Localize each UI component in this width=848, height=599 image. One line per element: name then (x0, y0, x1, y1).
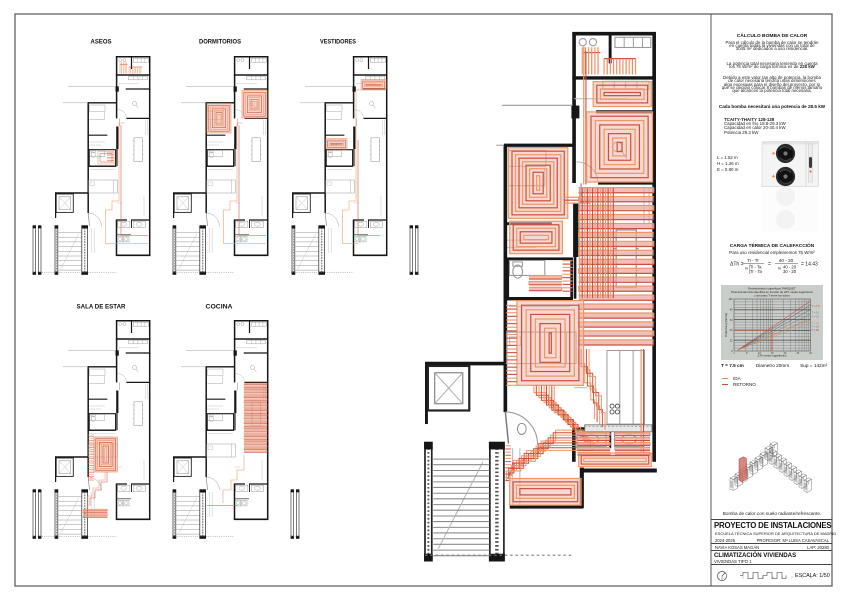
svg-text:ASEOS: ASEOS (91, 39, 113, 46)
svg-text:=: = (768, 262, 771, 268)
svg-text:ln: ln (745, 266, 748, 271)
svg-text:30 - 20: 30 - 20 (783, 269, 797, 274)
svg-text:T = 30: T = 30 (812, 328, 820, 332)
svg-text:= 14.43: = 14.43 (801, 262, 818, 268)
svg-text:Ti - Tr: Ti - Tr (747, 258, 759, 263)
svg-text:Tr - Ta: Tr - Ta (750, 269, 763, 274)
svg-text:40 - 30: 40 - 30 (779, 258, 794, 263)
svg-text:T = 25: T = 25 (812, 324, 820, 328)
svg-text:y del paso T entre los tubos: y del paso T entre los tubos (754, 293, 790, 297)
svg-text:T = 20: T = 20 (812, 321, 820, 325)
svg-text:ΔTh =: ΔTh = (730, 262, 744, 268)
svg-text:T = 10: T = 10 (812, 310, 820, 314)
svg-text:COCINA: COCINA (206, 304, 233, 311)
svg-text:Potencia q [W/m2]: Potencia q [W/m2] (724, 312, 728, 336)
svg-text:DORMITORIOS: DORMITORIOS (199, 39, 242, 46)
svg-text:VESTIDORES: VESTIDORES (320, 39, 356, 46)
svg-text:T = 7.5: T = 7.5 (812, 304, 821, 308)
svg-text:SALA DE ESTAR: SALA DE ESTAR (77, 304, 126, 311)
svg-text:ln: ln (778, 266, 781, 271)
svg-text:100: 100 (729, 298, 734, 301)
svg-text:T = 15: T = 15 (812, 314, 820, 318)
